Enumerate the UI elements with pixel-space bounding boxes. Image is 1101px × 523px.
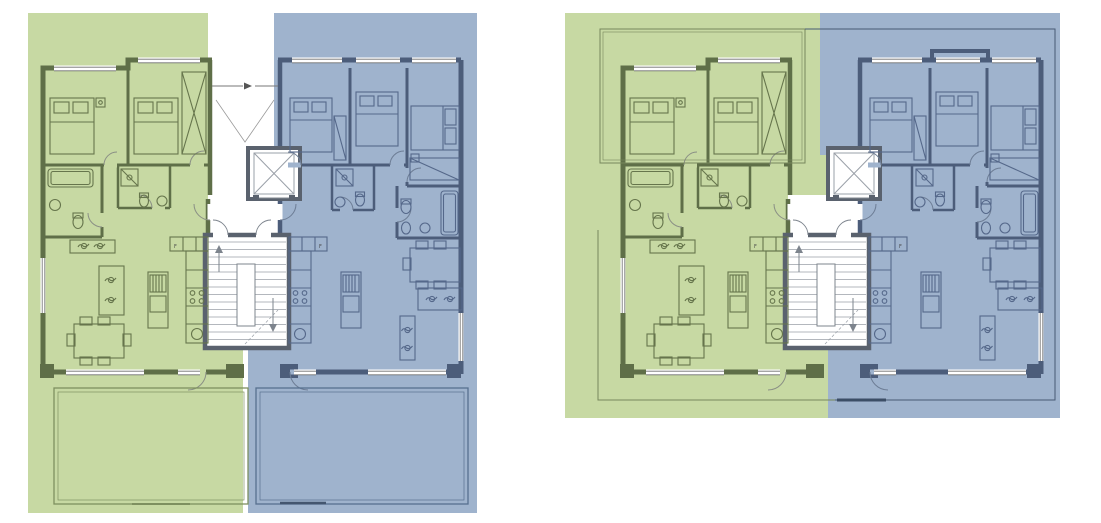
ramp-lines — [216, 100, 274, 142]
floor-plan-left — [28, 13, 477, 513]
floor-plans-figure: F F — [0, 0, 1101, 523]
floor-plan-right — [565, 13, 1060, 418]
entrance-arrow-icon — [244, 83, 252, 90]
floor-plans-svg: F F — [0, 0, 1101, 523]
entrance-corridor — [212, 83, 278, 143]
